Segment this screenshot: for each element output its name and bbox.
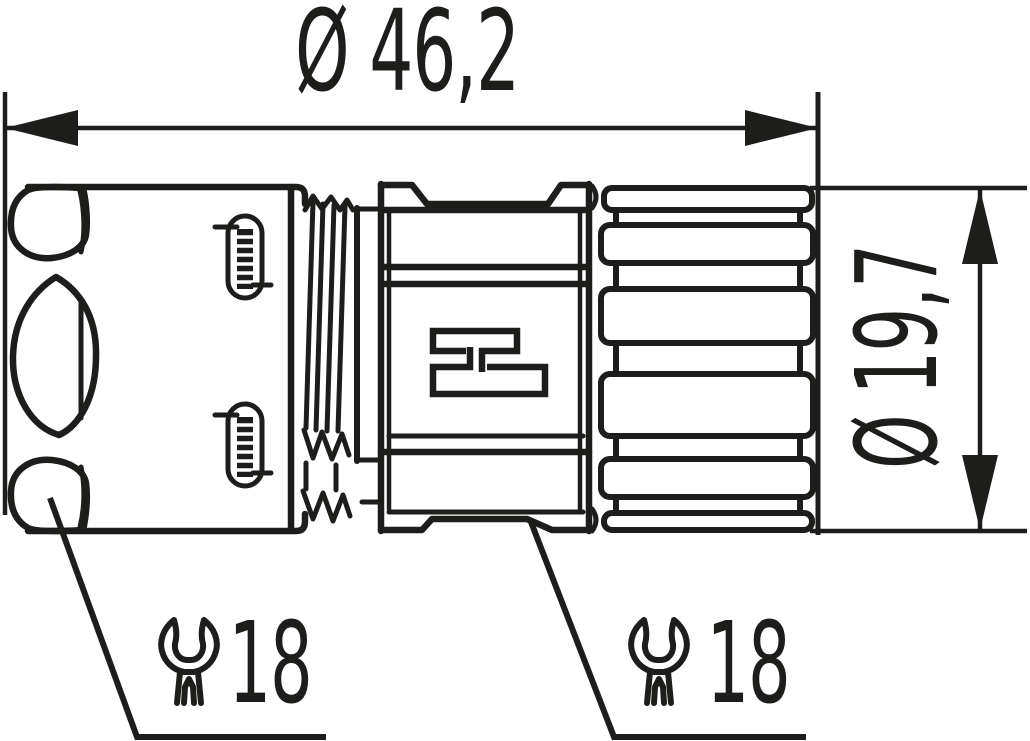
nut-rib [601,374,813,436]
dimension-front-diameter-label: Ø 19,7 [833,245,963,469]
open-end-wrench-icon [631,620,687,703]
joint-mark-top [592,186,596,208]
clamp-slot-bottom [215,404,271,486]
arrowhead-left [5,110,78,146]
nut-band [616,343,800,374]
thread-flank [316,204,323,430]
thread-section [303,196,380,521]
clamp-petal-top [11,187,87,258]
joint-mark-bottom [592,509,596,531]
clamp-petal-middle [13,277,96,435]
nut-rib [601,459,813,497]
arrowhead-down [962,455,998,530]
nut-band [604,188,812,210]
manufacturer-logo-icon [433,331,545,394]
nut-band [604,513,812,530]
center-body [381,184,589,531]
nut-rib [601,289,813,343]
connector-technical-drawing: Ø 46,2 Ø 19,7 [0,0,1030,741]
clamp-petal-bottom [11,460,87,531]
body-bottom-profile [381,519,589,530]
wrench-size-label: 18 [228,598,311,729]
thread-flank [338,206,345,431]
thread-zigzag-bottom [304,430,349,459]
thread-flank [327,205,334,431]
wrench-annotation-right: 18 [631,598,789,729]
coupling-nut [601,188,813,530]
nut-band [616,263,800,289]
dimension-overall-length-label: Ø 46,2 [295,0,519,116]
thread-zigzag-lower [303,491,350,521]
arrowhead-up [962,189,998,264]
wrench-annotation-left: 18 [161,598,311,729]
connector-body [11,184,813,531]
body-top-profile [381,185,589,204]
wrench-size-label: 18 [706,598,789,729]
arrowhead-right [745,110,818,146]
open-end-wrench-icon [161,620,217,703]
clamp-petal-top-fold [80,191,84,252]
thread-flank [306,202,313,428]
technical-drawing-page: Ø 46,2 Ø 19,7 [0,0,1030,741]
dimension-front-diameter: Ø 19,7 [810,188,1027,531]
clamp-slot-top [215,216,271,298]
nut-rib [601,225,813,263]
clamp-petal-bottom-fold [80,467,84,527]
nut-band [616,436,800,459]
cable-gland [11,187,305,531]
